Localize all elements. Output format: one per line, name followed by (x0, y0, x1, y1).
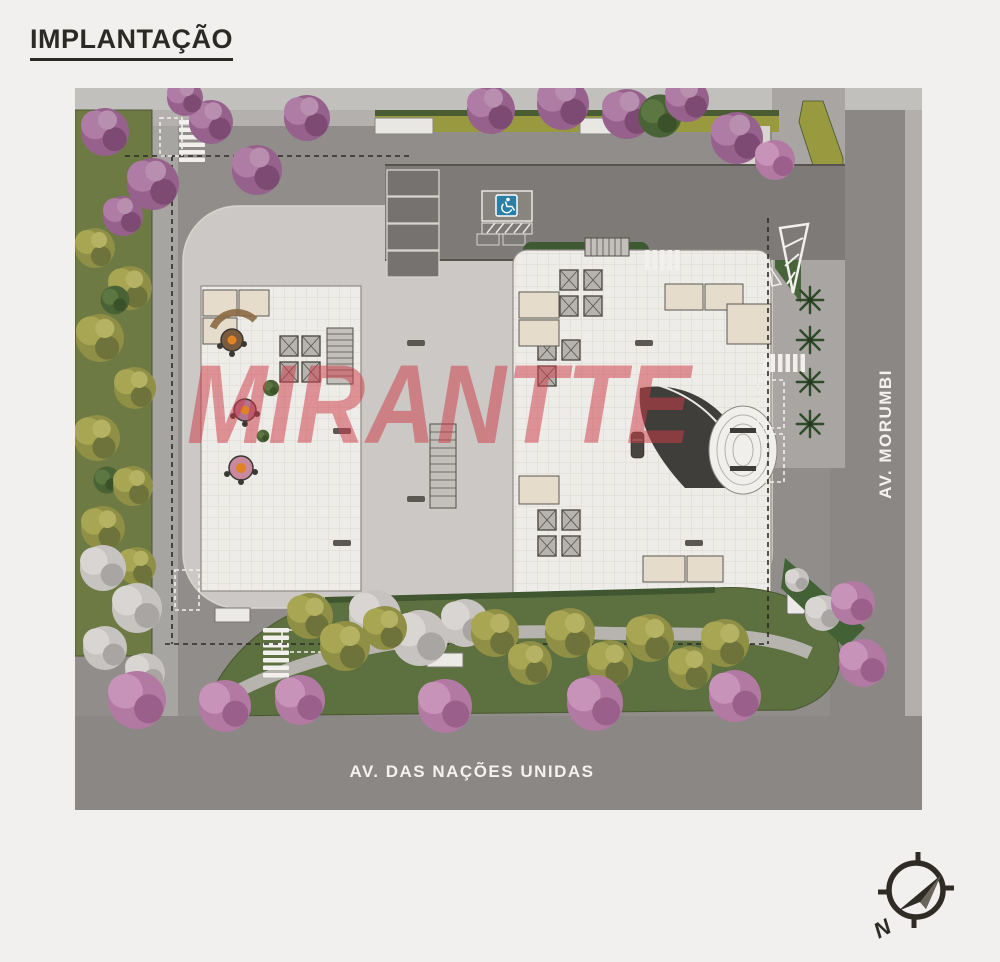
compass-ring (889, 863, 943, 917)
site-plan (75, 88, 922, 810)
compass-north-label: N (869, 913, 896, 943)
car (631, 432, 644, 458)
page-title: IMPLANTAÇÃO (30, 24, 233, 61)
accessible-parking-icon (496, 195, 517, 216)
spiral-ramp (709, 406, 777, 494)
compass: N (868, 848, 964, 948)
street-label-av-nacoes-unidas: AV. DAS NAÇÕES UNIDAS (350, 762, 595, 782)
left-sidewalk (152, 126, 178, 716)
implantation-page: IMPLANTAÇÃO (0, 0, 1000, 962)
street-label-av-morumbi: AV. MORUMBI (876, 369, 896, 499)
site-plan-graphic (75, 88, 922, 810)
compass-north-arrow-icon (898, 875, 941, 911)
central-stair (430, 424, 456, 508)
